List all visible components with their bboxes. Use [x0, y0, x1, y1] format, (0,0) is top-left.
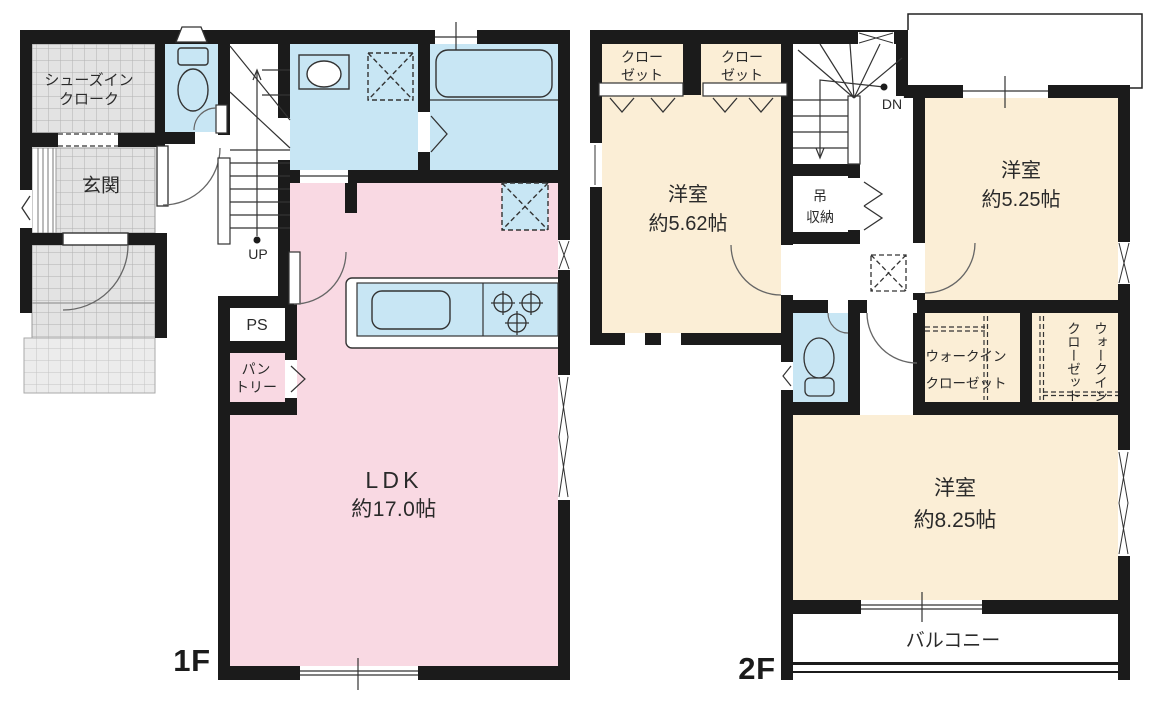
room-label-wic-right: ウォークイン クローゼット: [1059, 322, 1113, 403]
room-label-wic-left: ウォークイン クローゼット: [926, 343, 1007, 397]
room-label-closet-left: クロー ゼット: [621, 48, 663, 84]
bath-door: [418, 112, 430, 152]
bathtub-icon: [430, 50, 558, 100]
sic-opening: [58, 133, 118, 147]
floorplan-canvas: シューズイン クローク 玄関 UP PS パン トリー LDK 約17.0帖 1…: [0, 0, 1159, 706]
room-label-bedroom825: 洋室 約8.25帖: [914, 473, 997, 537]
room-label-balcony: バルコニー: [906, 626, 1001, 653]
vanity-sink-icon: [299, 55, 349, 89]
room-label-shoes-closet: シューズイン クローク: [44, 71, 133, 109]
f1-toilet-door: [216, 105, 227, 133]
toilet-vent-window: [176, 27, 207, 42]
stairs-up-label: UP: [248, 245, 267, 263]
kitchen-sink-icon: [372, 291, 450, 329]
room-label-bedroom562: 洋室 約5.62帖: [649, 181, 728, 239]
bedroom562-bottom-window-1: [625, 333, 645, 345]
entrance-window: [20, 190, 32, 228]
room-label-hanging-storage: 吊 収納: [806, 186, 834, 228]
closet-left-front: [599, 83, 683, 96]
ldk-bottom-window: [300, 666, 418, 680]
f1-entrance-steps: [32, 148, 56, 233]
room-label-entrance: 玄関: [82, 171, 120, 198]
room-label-pantry: パン トリー: [235, 360, 277, 396]
bedroom562-window: [590, 143, 602, 187]
room-label-bedroom525: 洋室 約5.25帖: [982, 157, 1061, 215]
room-label-closet-right: クロー ゼット: [721, 48, 763, 84]
hall-storage-icon: [871, 255, 906, 291]
floor-label-1f: 1F: [173, 643, 210, 679]
hanging-storage-door: [848, 178, 860, 230]
fridge-space-icon: [502, 183, 548, 230]
front-door: [63, 233, 128, 245]
bedroom525-door: [913, 243, 925, 293]
roof-outline: [908, 14, 1142, 88]
entrance-hall-door: [157, 146, 168, 206]
stairs-dn-label: DN: [880, 96, 904, 112]
floor-label-2f: 2F: [738, 651, 775, 687]
f1-toilet-icon: [178, 48, 208, 111]
bedroom562-door: [781, 245, 793, 295]
f1-approach: [24, 338, 155, 393]
pantry-opening: [285, 360, 297, 398]
room-label-pipe-space: PS: [246, 317, 267, 335]
bedroom825-door: [867, 300, 917, 313]
f2-toilet-door: [828, 300, 848, 313]
f1-porch: [32, 245, 155, 338]
ldk-door: [289, 252, 300, 304]
closet-right-front: [703, 83, 787, 96]
kitchen-counter: [346, 278, 558, 348]
bedroom562-bottom-window-2: [661, 333, 681, 345]
f2-toilet-icon: [804, 338, 834, 396]
room-label-ldk: LDK 約17.0帖: [351, 465, 436, 525]
f1-ldk-area: [290, 183, 558, 666]
